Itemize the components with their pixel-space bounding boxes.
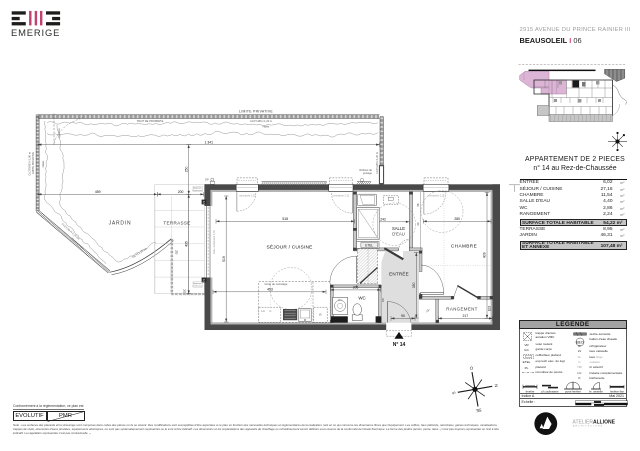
svg-text:SALLE: SALLE (392, 226, 405, 231)
svg-text:S: S (451, 391, 456, 395)
svg-text:150: 150 (382, 297, 385, 302)
svg-text:C: C (270, 309, 272, 313)
svg-text:SE: SE (475, 408, 482, 414)
svg-text:CLOT.AB H 1,20 m: CLOT.AB H 1,20 m (375, 152, 379, 174)
svg-text:103: 103 (487, 306, 491, 312)
svg-text:SEC: SEC (338, 299, 343, 301)
svg-text:Haies: Haies (41, 160, 45, 167)
svg-text:90: 90 (401, 314, 405, 318)
svg-text:RANGEMENT: RANGEMENT (446, 307, 477, 312)
svg-text:puisage: puisage (363, 171, 373, 175)
svg-text:GC H 1,20 cm: GC H 1,20 cm (131, 246, 148, 259)
svg-text:ATELIERALLIONE: ATELIERALLIONE (573, 419, 616, 425)
svg-text:D'EAU: D'EAU (392, 231, 404, 236)
svg-text:porte fenêtre: porte fenêtre (565, 389, 581, 393)
svg-text:1 341: 1 341 (205, 140, 214, 144)
svg-text:24: 24 (416, 222, 420, 225)
svg-text:pf coulissante: pf coulissante (541, 389, 559, 393)
svg-text:GC: GC (175, 249, 179, 254)
svg-text:pl: pl (426, 309, 430, 313)
svg-text:LIMITE PRIVATIVE: LIMITE PRIVATIVE (239, 109, 273, 113)
svg-text:217: 217 (463, 314, 469, 318)
svg-text:459: 459 (95, 190, 101, 194)
svg-text:menuiserie 2,15: menuiserie 2,15 (428, 194, 445, 197)
svg-text:519: 519 (222, 256, 226, 262)
svg-text:409: 409 (483, 252, 487, 258)
svg-text:N: N (493, 384, 498, 388)
svg-text:250: 250 (184, 167, 188, 173)
svg-text:LIMITE PRIVATIVE: LIMITE PRIVATIVE (31, 152, 35, 175)
svg-text:ETEL: ETEL (365, 244, 373, 248)
svg-text:N° 14: N° 14 (393, 342, 406, 348)
svg-text:ARCHITECTURE: ARCHITECTURE (573, 425, 603, 428)
svg-text:WC: WC (358, 296, 365, 301)
svg-text:menuiserie 2,15: menuiserie 2,15 (333, 194, 350, 197)
svg-text:242: 242 (380, 217, 386, 221)
svg-text:O: O (469, 365, 474, 371)
svg-text:fenêtre: fenêtre (525, 389, 534, 393)
svg-text:TRAIT DE PROPRETE: TRAIT DE PROPRETE (137, 119, 164, 123)
svg-text:SÉJOUR / CUISINE: SÉJOUR / CUISINE (266, 244, 312, 251)
svg-text:200: 200 (178, 190, 184, 194)
svg-text:280: 280 (454, 217, 460, 221)
svg-text:baie coulissante 2,35: baie coulissante 2,35 (213, 230, 216, 254)
svg-text:ENTRÉE: ENTRÉE (389, 270, 409, 276)
svg-text:LC: LC (262, 309, 265, 313)
svg-text:fenêtre fixe: fenêtre fixe (610, 389, 624, 393)
svg-text:518: 518 (282, 217, 288, 221)
svg-text:GC: GC (183, 288, 187, 293)
svg-text:EP: EP (205, 178, 209, 182)
svg-text:CLOTURE H 1,80 m: CLOTURE H 1,80 m (28, 152, 32, 176)
svg-text:CHAMBRE: CHAMBRE (451, 244, 477, 249)
svg-text:205: 205 (353, 286, 359, 290)
svg-text:Applique: Applique (193, 282, 202, 285)
svg-text:menuiserie 2,15: menuiserie 2,15 (239, 194, 256, 197)
svg-text:350: 350 (412, 282, 416, 288)
svg-text:435: 435 (184, 241, 188, 247)
svg-text:TERRASSE: TERRASSE (163, 221, 190, 226)
svg-text:fe. vantelle: fe. vantelle (589, 389, 603, 393)
svg-text:limite de carrelage: limite de carrelage (265, 282, 288, 286)
svg-text:Applique: Applique (193, 186, 202, 189)
svg-text:JARDIN: JARDIN (109, 221, 132, 227)
svg-text:CLOT.AB H 1,20 m: CLOT.AB H 1,20 m (250, 119, 272, 123)
svg-text:56: 56 (416, 203, 420, 206)
